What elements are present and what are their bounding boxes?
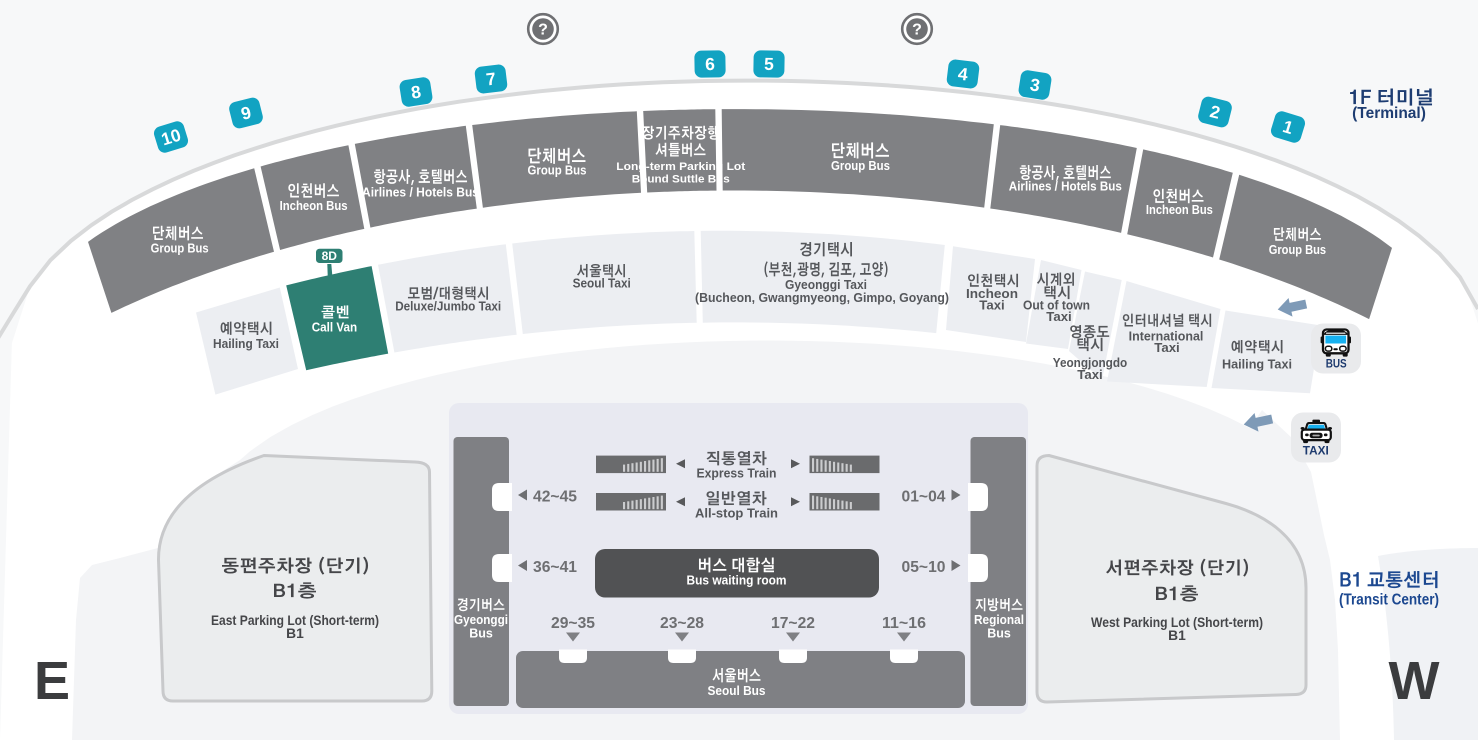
- svg-text:23~28: 23~28: [660, 615, 704, 632]
- svg-text:Call Van: Call Van: [312, 320, 357, 335]
- svg-text:(Terminal): (Terminal): [1352, 105, 1426, 122]
- svg-text:01~04: 01~04: [902, 489, 946, 506]
- svg-text:W: W: [1389, 651, 1440, 711]
- svg-text:Long-term Parking Lot: Long-term Parking Lot: [616, 161, 745, 173]
- svg-text:E: E: [34, 651, 70, 711]
- svg-text:Group Bus: Group Bus: [151, 241, 209, 256]
- svg-text:8D: 8D: [322, 249, 338, 263]
- svg-text:Taxi: Taxi: [979, 298, 1004, 313]
- svg-text:Hailing Taxi: Hailing Taxi: [1222, 356, 1292, 371]
- svg-text:TAXI: TAXI: [1303, 444, 1329, 458]
- svg-text:?: ?: [538, 22, 548, 39]
- svg-text:All-stop Train: All-stop Train: [695, 506, 778, 521]
- svg-text:6: 6: [705, 54, 715, 74]
- svg-text:05~10: 05~10: [902, 559, 946, 576]
- svg-text:Group Bus: Group Bus: [528, 162, 587, 177]
- svg-text:11~16: 11~16: [882, 615, 926, 632]
- svg-text:Gyeonggi: Gyeonggi: [454, 613, 508, 627]
- svg-text:Express Train: Express Train: [697, 466, 777, 481]
- svg-text:Group Bus: Group Bus: [1269, 242, 1326, 257]
- svg-text:Taxi: Taxi: [1154, 340, 1179, 355]
- svg-text:5: 5: [764, 54, 774, 74]
- svg-text:29~35: 29~35: [551, 615, 595, 632]
- svg-text:Airlines / Hotels Bus: Airlines / Hotels Bus: [1009, 178, 1122, 193]
- svg-text:Seoul Taxi: Seoul Taxi: [573, 275, 631, 290]
- svg-text:Bus waiting room: Bus waiting room: [687, 573, 787, 588]
- svg-text:Bound Suttle Bus: Bound Suttle Bus: [632, 173, 730, 185]
- svg-text:Airlines / Hotels Bus: Airlines / Hotels Bus: [362, 184, 479, 199]
- svg-text:Taxi: Taxi: [1077, 367, 1102, 382]
- svg-text:(Bucheon, Gwangmyeong, Gimpo,: (Bucheon, Gwangmyeong, Gimpo, Goyang): [695, 290, 949, 305]
- svg-text:BUS: BUS: [1326, 357, 1347, 371]
- svg-text:17~22: 17~22: [771, 615, 815, 632]
- svg-text:Seoul Bus: Seoul Bus: [708, 683, 766, 698]
- svg-text:36~41: 36~41: [533, 559, 577, 576]
- svg-text:Deluxe/Jumbo Taxi: Deluxe/Jumbo Taxi: [395, 299, 501, 314]
- svg-text:Taxi: Taxi: [1046, 309, 1071, 324]
- svg-text:Group Bus: Group Bus: [831, 158, 890, 173]
- svg-text:Regional: Regional: [974, 613, 1024, 627]
- svg-text:Incheon Bus: Incheon Bus: [1146, 202, 1213, 217]
- svg-text:42~45: 42~45: [533, 489, 577, 506]
- svg-text:Hailing Taxi: Hailing Taxi: [213, 336, 279, 351]
- svg-text:?: ?: [912, 22, 922, 39]
- svg-text:(Transit Center): (Transit Center): [1339, 592, 1439, 609]
- svg-text:B1: B1: [286, 626, 304, 641]
- svg-text:Incheon Bus: Incheon Bus: [280, 198, 348, 213]
- svg-text:Bus: Bus: [987, 627, 1011, 641]
- svg-text:B1: B1: [1168, 628, 1186, 643]
- svg-text:Bus: Bus: [469, 627, 493, 641]
